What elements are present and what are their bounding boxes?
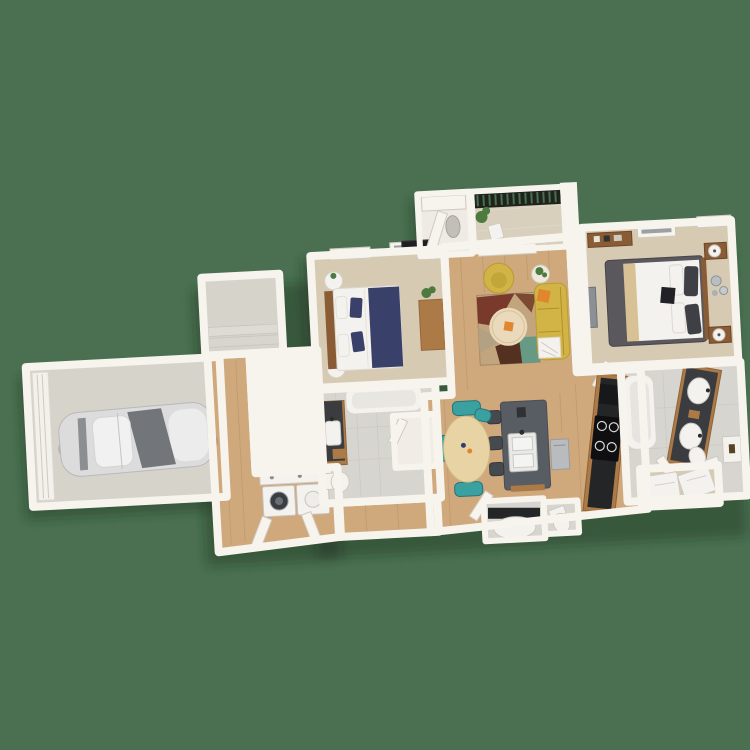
bed-2: [605, 255, 710, 346]
shelf: [421, 195, 466, 211]
dark-pillow: [684, 266, 699, 296]
sofa: [534, 283, 570, 361]
sink: [325, 421, 341, 446]
pillow: [671, 303, 686, 334]
floorplan-render: [0, 0, 750, 750]
car-hood: [167, 407, 209, 462]
shelf: [332, 448, 347, 459]
floorplan-svg: [0, 0, 750, 750]
stool: [489, 462, 504, 476]
sofa-pillow: [537, 289, 551, 303]
stove: [590, 415, 622, 462]
car-roof: [92, 415, 134, 468]
pillow: [335, 296, 347, 319]
bed-1: [324, 285, 403, 371]
table-decor: [503, 321, 513, 331]
dishwasher-open: [550, 439, 570, 470]
stool: [488, 436, 503, 450]
cushion: [660, 287, 675, 304]
desk: [419, 299, 446, 350]
pillow: [337, 334, 349, 357]
dining-chair: [454, 481, 483, 496]
island-decor: [517, 407, 527, 417]
duvet-foot: [368, 286, 403, 368]
car: [57, 401, 216, 478]
accent-pillow: [350, 297, 363, 318]
